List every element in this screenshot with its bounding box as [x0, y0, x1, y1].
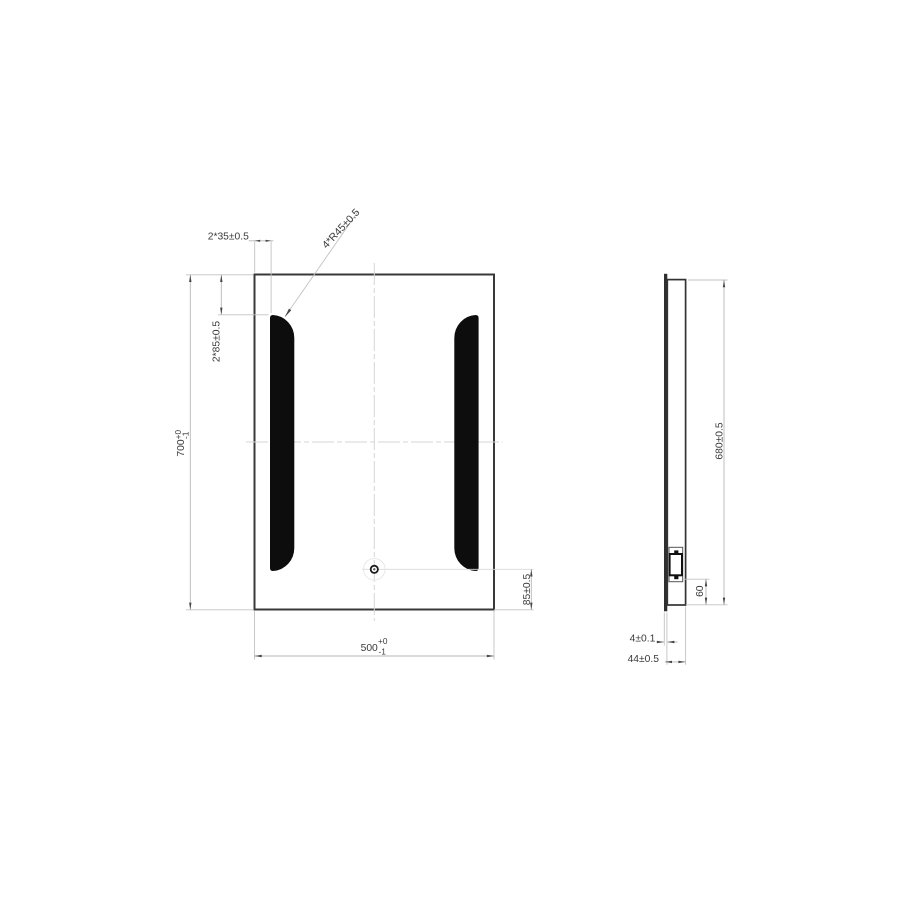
svg-text:700: 700 — [176, 439, 187, 456]
svg-text:500: 500 — [361, 643, 378, 654]
svg-text:-1: -1 — [181, 431, 191, 439]
svg-text:44±0.5: 44±0.5 — [628, 654, 660, 665]
svg-text:+0: +0 — [378, 636, 388, 646]
svg-text:2*35±0.5: 2*35±0.5 — [208, 231, 249, 242]
svg-text:4±0.1: 4±0.1 — [630, 634, 656, 645]
svg-text:85±0.5: 85±0.5 — [522, 574, 533, 606]
svg-text:2*85±0.5: 2*85±0.5 — [211, 321, 222, 362]
svg-text:-1: -1 — [379, 647, 387, 657]
svg-text:680±0.5: 680±0.5 — [715, 422, 726, 459]
svg-text:60: 60 — [695, 585, 706, 597]
